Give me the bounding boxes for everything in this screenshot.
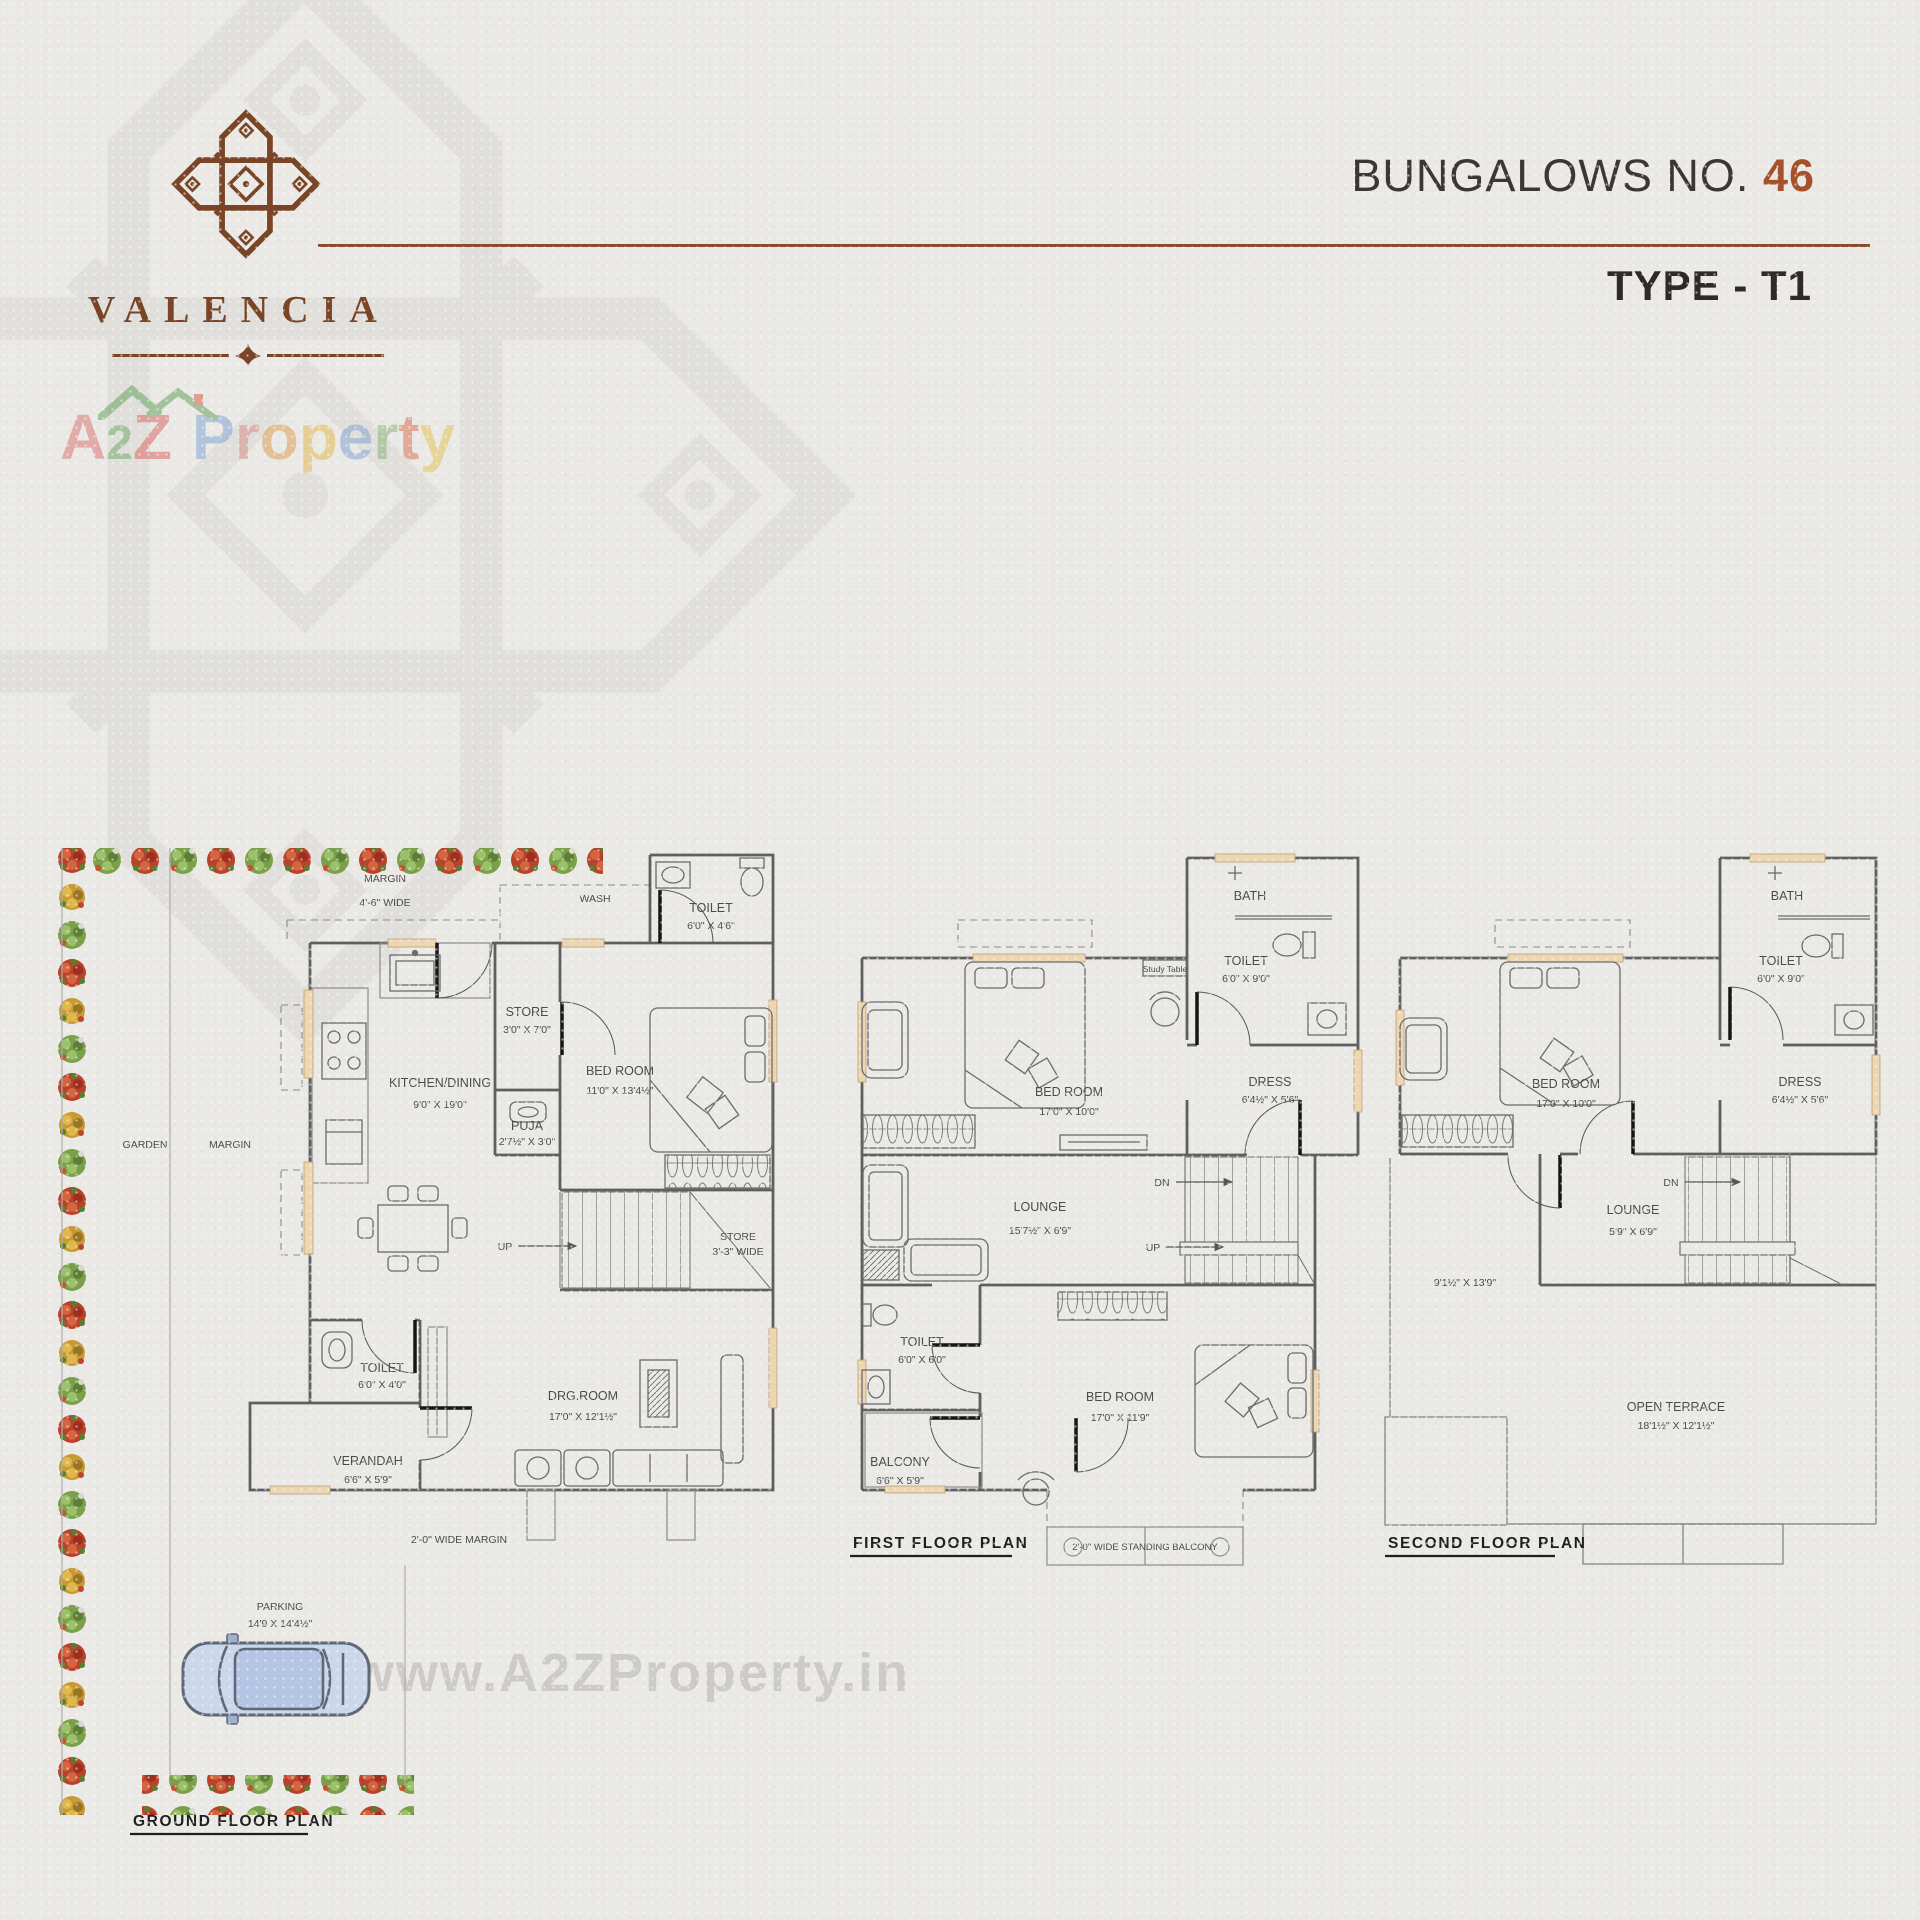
prop-letter: r [373,400,398,474]
bedroom-top-dim: 17'0" X 10'0" [1039,1106,1099,1118]
toilet-top-dim: 6'0" X 9'0" [1222,973,1270,985]
dress-dim: 6'4½" X 5'6" [1772,1094,1829,1106]
valencia-emblem-icon [168,106,324,262]
brand-underline-left [112,354,229,357]
store-label: STORE [506,1005,549,1019]
toilet-mid-label: TOILET [900,1335,944,1349]
toilet-dim: 6'0" X 4'0" [358,1379,406,1391]
lounge-dim: 5'9" X 6'9" [1609,1226,1657,1238]
bedroom-bottom-dim: 17'0" X 11'9" [1091,1412,1150,1424]
standing-balcony-label: 2'-0" WIDE STANDING BALCONY [1072,1542,1218,1553]
up-label: UP [1146,1242,1161,1254]
parking-label: PARKING [257,1601,303,1613]
garden-label: GARDEN [123,1139,168,1151]
bedroom-label: BED ROOM [1532,1077,1600,1091]
windows [270,939,777,1494]
toilet-label: TOILET [1759,954,1803,968]
toilet-top-label: TOILET [689,901,733,915]
brand-underline [112,344,384,366]
stair-store-dim: 3'-3" WIDE [712,1246,763,1258]
dress-dim: 6'4½" X 5'6" [1242,1094,1299,1106]
a2z-property-logo: A2ZProperty [60,400,455,474]
dn-label: DN [1154,1177,1169,1189]
parked-car [183,1634,369,1724]
margin-bottom-label: 2'-0" WIDE MARGIN [411,1534,507,1546]
verandah-dim: 6'6" X 5'9" [344,1474,392,1486]
drawing-room-label: DRG.ROOM [548,1389,618,1403]
balcony-label: BALCONY [870,1455,930,1469]
prop-letter: e [338,400,374,474]
second-floor-plan-svg: BATH TOILET 6'0" X 9'0" BED ROOM 17'0" X… [1380,840,1890,1600]
staircase [1680,1157,1845,1286]
margin-top-dim: 4'-6" WIDE [359,897,410,909]
page-title: BUNGALOWS NO. 46 [1351,150,1815,202]
kitchen-label: KITCHEN/DINING [389,1076,491,1090]
bungalow-number: 46 [1763,150,1815,201]
brand-underline-right [267,354,384,357]
open-terrace-label: OPEN TERRACE [1627,1400,1725,1414]
dress-label: DRESS [1778,1075,1821,1089]
prop-letter: y [420,400,456,474]
prop-letter: p [299,400,338,474]
second-floor-title: SECOND FLOOR PLAN [1388,1535,1587,1552]
stair-store-label: STORE [720,1231,756,1243]
store-dim: 3'0" X 7'0" [503,1024,551,1036]
margin-top-label: MARGIN [364,873,406,885]
toilet-label: TOILET [360,1361,404,1375]
prop-letter: o [260,400,299,474]
lounge-label: LOUNGE [1014,1200,1067,1214]
type-label: TYPE - T1 [1607,262,1812,310]
lotus-leaf-icon [235,344,261,366]
toilet-top-dim: 6'0" X 4'6" [687,920,735,932]
prop-letter: t [398,400,419,474]
bath-label: BATH [1771,889,1803,903]
toilet-top-label: TOILET [1224,954,1268,968]
first-floor-plan-svg: BATH TOILET 6'0" X 9'0" Study Table BED … [840,840,1370,1600]
bath-label: BATH [1234,889,1266,903]
toilet-dim: 6'0" X 9'0" [1757,973,1805,985]
bedroom-dim: 11'0" X 13'4½" [586,1085,654,1097]
dn-label: DN [1663,1177,1678,1189]
verandah-label: VERANDAH [333,1454,402,1468]
brand-name: VALENCIA [88,288,388,332]
margin-left-label: MARGIN [209,1139,251,1151]
header-divider [318,244,1870,247]
house-roof-icon [98,384,218,420]
title-prefix: BUNGALOWS NO. [1351,150,1763,201]
bedroom-label: BED ROOM [586,1064,654,1078]
dress-label: DRESS [1248,1075,1291,1089]
study-table-label: Study Table [1143,964,1188,974]
wash-label: WASH [579,893,610,905]
first-floor-title: FIRST FLOOR PLAN [853,1535,1028,1552]
bedroom-dim: 17'0" X 10'0" [1536,1098,1596,1110]
bedroom-bottom-label: BED ROO­M [1086,1390,1154,1404]
ground-floor-plan-svg: MARGIN 4'-6" WIDE WASH TOILET 6'0" X 4'6… [50,840,850,1880]
brochure-page: VALENCIA BUNGALOWS NO. 46 TYPE - T1 A2ZP… [0,0,1920,1920]
puja-dim: 2'7½" X 3'0" [499,1136,556,1148]
toilet-mid-dim: 6'0" X 6'0" [898,1354,946,1366]
terrace-side-dim: 9'1½" X 13'9" [1434,1277,1497,1289]
bedroom-top-label: BED ROOM [1035,1085,1103,1099]
up-label: UP [498,1241,513,1253]
kitchen-dim: 9'0" X 19'0" [413,1099,467,1111]
drawing-room-dim: 17'0" X 12'1½" [549,1411,617,1423]
parking-dim: 14'9 X 14'4½" [248,1618,313,1630]
puja-label: PUJA [511,1119,544,1133]
ground-floor-title: GROUND FLOOR PLAN [133,1813,334,1830]
lounge-dim: 15'7½" X 6'9" [1009,1225,1072,1237]
staircase [1165,1157,1314,1283]
lounge-label: LOUNGE [1607,1203,1660,1217]
open-terrace-dim: 18'1½" X 12'1½" [1638,1420,1715,1432]
balcony-dim: 6'6" X 5'9" [876,1475,924,1487]
chhajja-dashed [1495,920,1630,1212]
a2z-letter-2: 2 [106,416,133,471]
walls [1400,858,1876,1285]
prop-letter: r [235,400,260,474]
